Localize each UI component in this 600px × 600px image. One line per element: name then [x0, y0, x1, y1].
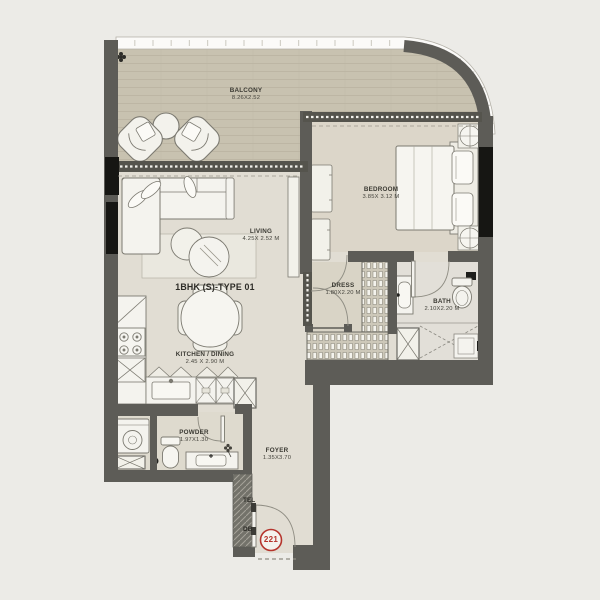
kitchen-dining-dims: 2.45 X 2.90 M	[176, 359, 234, 367]
black-window	[479, 147, 493, 237]
bed-mattress	[396, 146, 454, 230]
shaft-duct	[115, 456, 145, 469]
tv-unit	[288, 177, 299, 277]
foyer-label: FOYER 1.35X3.70	[263, 447, 291, 463]
floorplan-graphics	[0, 0, 600, 600]
bath-name: BATH	[433, 298, 451, 305]
bath-door-leaf	[412, 261, 416, 297]
bedroom-name: BEDROOM	[364, 186, 398, 193]
bath-dims: 2.10X2.20 M	[424, 306, 459, 314]
living-name: LIVING	[250, 228, 272, 235]
db-label: DB	[243, 527, 252, 534]
balcony-label: BALCONY 8.26X2.52	[230, 87, 263, 103]
shaft-duct	[234, 378, 256, 408]
dining-table	[181, 289, 239, 347]
tel-label: TEL	[243, 498, 255, 505]
bath-label: BATH 2.10X2.20 M	[424, 298, 459, 314]
washing-machine	[116, 419, 149, 453]
foyer-name: FOYER	[266, 447, 289, 454]
kitchen-sink	[152, 382, 190, 399]
dress-label: DRESS 1.80X2.20 M	[325, 282, 360, 298]
kitchen-dining-label: KITCHEN / DINING 2.45 X 2.90 M	[176, 351, 234, 367]
hatched-wall	[233, 474, 252, 547]
wardrobe	[307, 332, 388, 360]
powder-toilet	[161, 437, 180, 468]
unit-number: 221	[264, 536, 278, 544]
dress-dims: 1.80X2.20 M	[325, 290, 360, 298]
powder-name: POWDER	[179, 429, 209, 436]
floorplan-page: BALCONY 8.26X2.52 BEDROOM 3.85X 3.12 M L…	[0, 0, 600, 600]
balcony-dims: 8.26X2.52	[230, 95, 263, 103]
bedroom-label: BEDROOM 3.85X 3.12 M	[363, 186, 400, 202]
bath-vanity	[396, 276, 413, 314]
bedroom-dims: 3.85X 3.12 M	[363, 194, 400, 202]
living-label: LIVING 4.25X 2.52 M	[243, 228, 280, 244]
stove	[115, 328, 145, 356]
dress-name: DRESS	[332, 282, 355, 289]
plan-title: 1BHK (S)-TYPE 01	[175, 283, 254, 293]
powder-dims: 1.97X1.30	[179, 437, 209, 445]
wardrobe	[362, 261, 388, 332]
foyer-dims: 1.35X3.70	[263, 455, 291, 463]
shaft-duct	[397, 328, 419, 360]
powder-door-leaf	[221, 416, 225, 442]
powder-label: POWDER 1.97X1.30	[179, 429, 209, 445]
black-window	[106, 202, 118, 254]
black-window	[105, 157, 119, 195]
kitchen-dining-name: KITCHEN / DINING	[176, 351, 234, 358]
living-dims: 4.25X 2.52 M	[243, 236, 280, 244]
balcony-name: BALCONY	[230, 87, 263, 94]
